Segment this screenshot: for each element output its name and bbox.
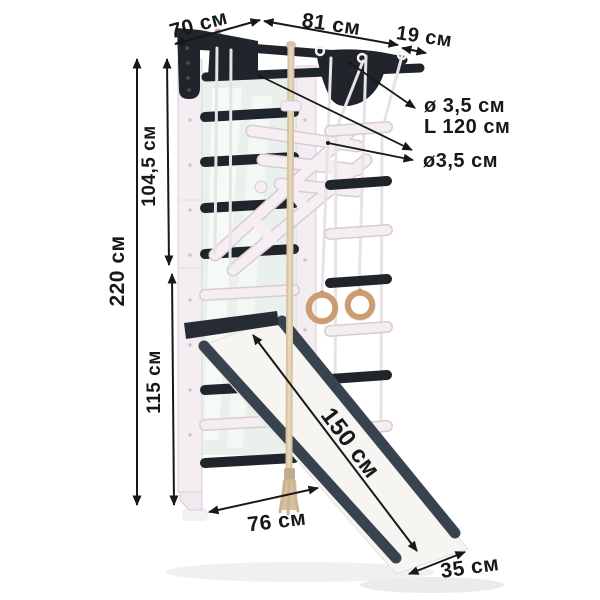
left-upright	[178, 60, 202, 492]
hinge-pivot	[255, 181, 267, 193]
dim-label-pullup-diameter: ø 3,5 см	[424, 95, 505, 117]
dim-label-pullup-length: L 120 см	[424, 116, 510, 138]
product-dimension-diagram: 70 см 81 см 19 см ø 3,5 см L 120 см ø3,5…	[0, 0, 600, 600]
dim-label-lower-height: 115 см	[144, 350, 165, 414]
diagram-canvas: 70 см 81 см 19 см ø 3,5 см L 120 см ø3,5…	[0, 0, 600, 600]
dim-label-rung-diameter: ø3,5 см	[423, 150, 498, 172]
rope-clip	[281, 101, 301, 111]
dim-label-upper-height: 104,5 см	[139, 125, 160, 206]
dim-label-total-height: 220 см	[106, 235, 129, 306]
